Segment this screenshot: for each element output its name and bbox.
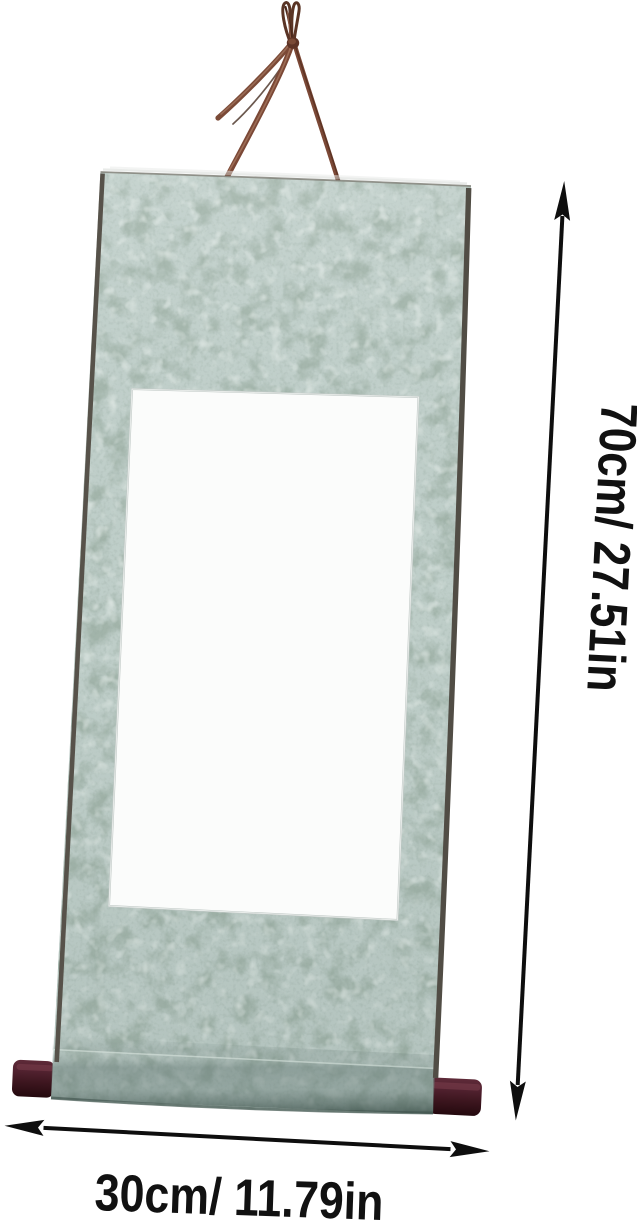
svg-text:70cm/ 27.51in: 70cm/ 27.51in bbox=[575, 402, 637, 694]
svg-text:30cm/ 11.79in: 30cm/ 11.79in bbox=[94, 1164, 385, 1220]
